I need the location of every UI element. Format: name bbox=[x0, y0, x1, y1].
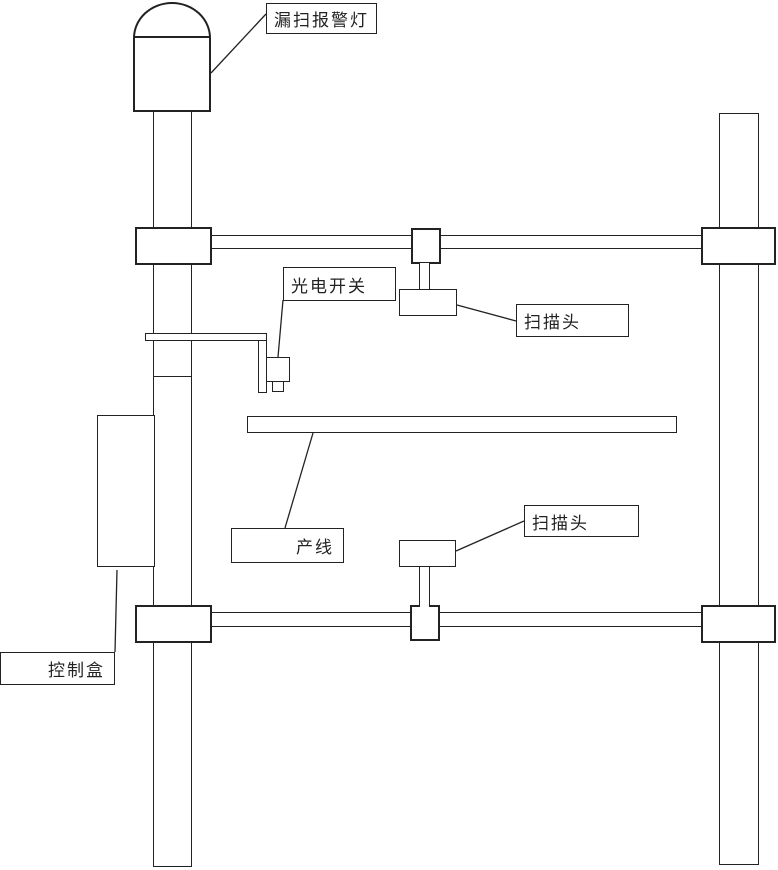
top-scanner-stem bbox=[419, 263, 430, 291]
alarm-light-body bbox=[133, 2, 211, 112]
production-line-label: 产线 bbox=[231, 528, 344, 563]
bottom-middle-clamp-block bbox=[410, 605, 440, 641]
top-scanner-head bbox=[399, 289, 457, 316]
patent-diagram-canvas: 漏扫报警灯 光电开关 扫描头 扫描头 产线 控制盒 bbox=[0, 0, 778, 870]
photoelectric-switch-nub bbox=[272, 381, 284, 392]
alarm-light-label: 漏扫报警灯 bbox=[266, 3, 377, 34]
bottom-scanner-head bbox=[399, 540, 456, 567]
scan-head-top-leader-line bbox=[457, 305, 516, 321]
control-box-body bbox=[97, 415, 155, 567]
photoelectric-switch-leader-line bbox=[278, 300, 283, 357]
bottom-scanner-stem bbox=[419, 565, 430, 607]
bottom-right-clamp-block bbox=[701, 605, 776, 643]
control-box-leader-line bbox=[115, 570, 117, 652]
scan-head-bottom-leader-line bbox=[456, 521, 524, 551]
right-post bbox=[719, 113, 759, 865]
alarm-light-leader-line bbox=[211, 14, 266, 73]
photoelectric-switch-body bbox=[266, 357, 290, 382]
bottom-left-clamp-block bbox=[135, 605, 212, 643]
scan-head-bottom-label: 扫描头 bbox=[524, 505, 639, 537]
alarm-light-base-line bbox=[134, 36, 210, 38]
scan-head-top-label: 扫描头 bbox=[516, 304, 629, 337]
top-middle-clamp-block bbox=[411, 228, 441, 264]
control-box-label: 控制盒 bbox=[0, 652, 115, 685]
switch-bracket-bar bbox=[145, 333, 267, 341]
photoelectric-switch-label: 光电开关 bbox=[283, 267, 396, 301]
production-line-leader-line bbox=[285, 433, 313, 528]
production-line-bar bbox=[247, 416, 677, 433]
top-rail bbox=[160, 235, 752, 249]
top-left-clamp-block bbox=[135, 227, 212, 265]
top-right-clamp-block bbox=[701, 227, 776, 265]
bottom-rail bbox=[160, 612, 752, 627]
